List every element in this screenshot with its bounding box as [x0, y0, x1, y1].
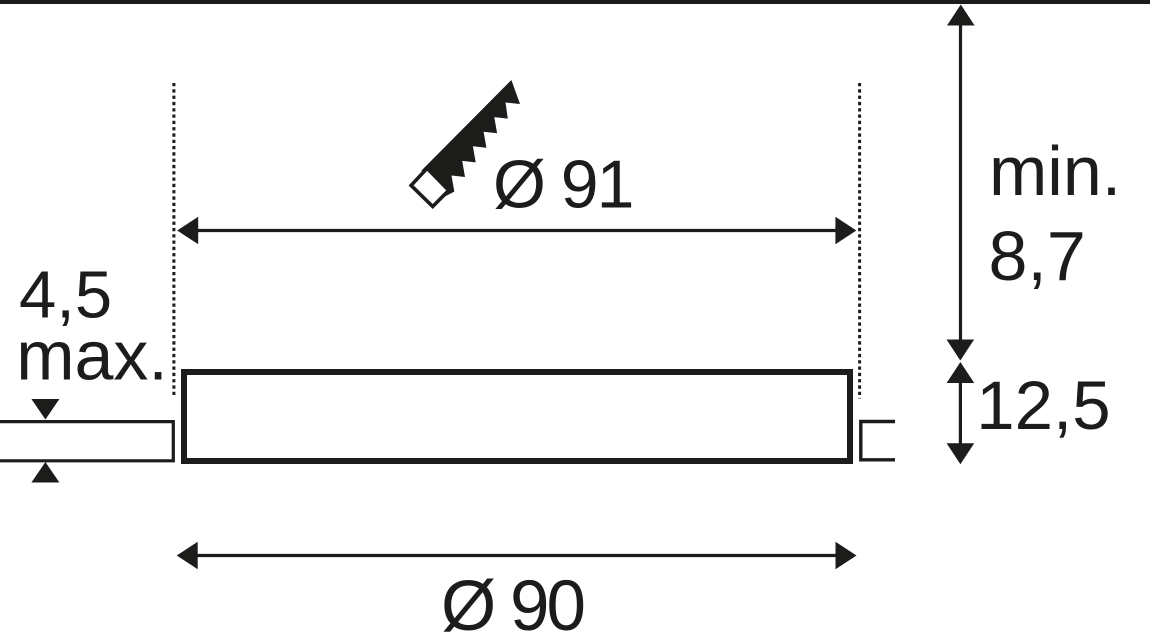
svg-text:min.: min.: [989, 132, 1121, 210]
svg-text:12,5: 12,5: [976, 367, 1110, 444]
svg-text:Ø 91: Ø 91: [493, 147, 632, 223]
svg-text:8,7: 8,7: [989, 217, 1086, 295]
svg-text:max.: max.: [16, 317, 168, 395]
svg-text:Ø 90: Ø 90: [441, 567, 583, 632]
